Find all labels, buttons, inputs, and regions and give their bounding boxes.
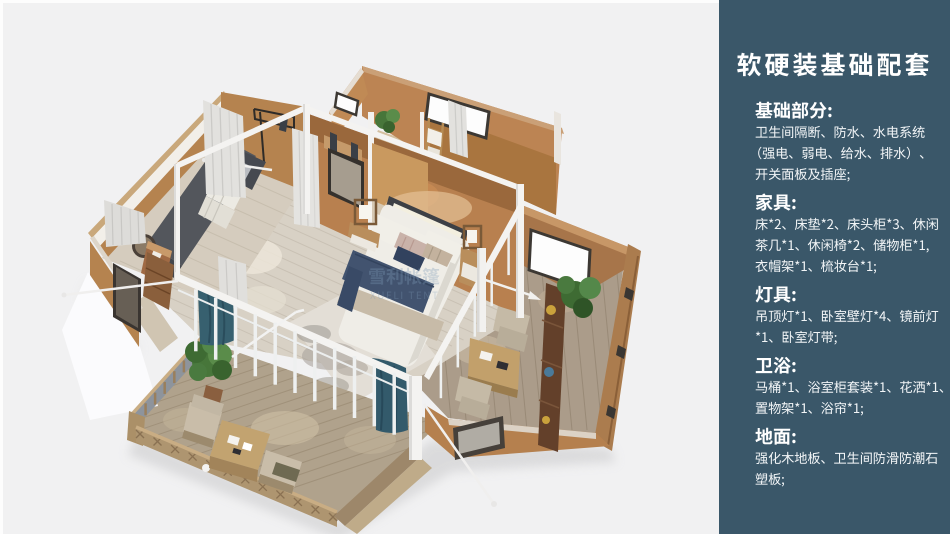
svg-text:雪利帐篷: 雪利帐篷 — [368, 263, 440, 289]
svg-text:XUELI TENT: XUELI TENT — [370, 287, 440, 302]
